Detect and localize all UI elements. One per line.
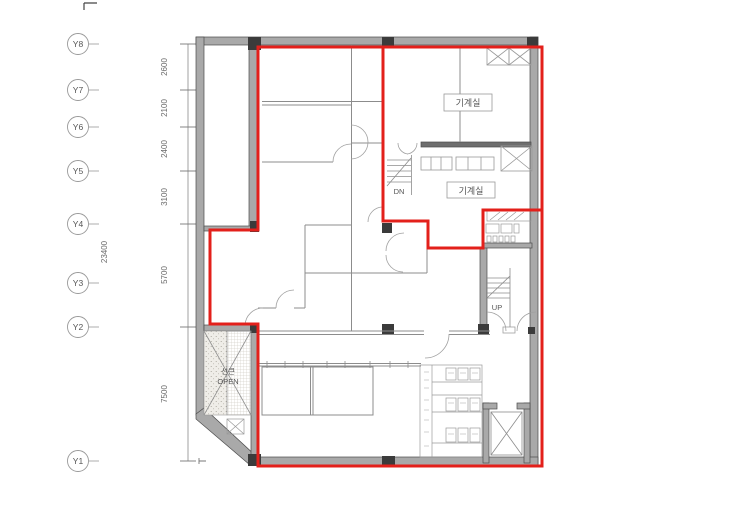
grid-axis: Y8 Y7 Y6 Y5 Y4 Y3 Y2 Y1 2600 2100 2400 3… bbox=[68, 34, 207, 472]
door-arc bbox=[245, 308, 263, 325]
wall-elevator-right bbox=[524, 403, 530, 463]
wall-sunken-top bbox=[204, 325, 257, 331]
wall-top bbox=[196, 37, 538, 45]
column bbox=[478, 324, 489, 334]
floor-plan-page: Y8 Y7 Y6 Y5 Y4 Y3 Y2 Y1 2600 2100 2400 3… bbox=[0, 0, 750, 530]
dimension-values: 2600 2100 2400 3100 5700 7500 23400 bbox=[100, 58, 169, 403]
sunken-area: 선큰 OPEN bbox=[204, 331, 251, 415]
column bbox=[382, 324, 394, 334]
duct-room bbox=[486, 211, 531, 242]
door-arc bbox=[368, 207, 383, 222]
machine-room-upper-label: 기계실 bbox=[456, 97, 481, 108]
grid-label-y8: Y8 bbox=[73, 39, 84, 49]
wall-elevator-left bbox=[483, 403, 489, 463]
grid-label-y6: Y6 bbox=[73, 122, 84, 132]
dim-7500: 7500 bbox=[160, 385, 169, 403]
door-arc bbox=[333, 144, 351, 162]
door-arc bbox=[407, 143, 417, 154]
dim-5700: 5700 bbox=[160, 266, 169, 284]
floor-plan-drawing: Y8 Y7 Y6 Y5 Y4 Y3 Y2 Y1 2600 2100 2400 3… bbox=[0, 0, 750, 530]
stair-up bbox=[487, 268, 510, 327]
dim-2100: 2100 bbox=[160, 99, 169, 117]
grid-label-y3: Y3 bbox=[73, 278, 84, 288]
door-threshold bbox=[503, 327, 515, 333]
door-arc bbox=[398, 143, 408, 154]
door-arc bbox=[351, 142, 368, 159]
wall-diagonal bbox=[196, 408, 257, 465]
corner-mark bbox=[84, 3, 97, 10]
pit-box bbox=[227, 419, 244, 434]
wall-corridor-right bbox=[249, 38, 257, 231]
grid-label-y5: Y5 bbox=[73, 166, 84, 176]
sunken-label-line1: 선큰 bbox=[221, 367, 235, 376]
wall-stair-left bbox=[480, 247, 487, 334]
dim-2600: 2600 bbox=[160, 58, 169, 76]
sunken-label-line2: OPEN bbox=[217, 377, 238, 386]
column bbox=[382, 456, 395, 465]
dim-3100: 3100 bbox=[160, 188, 169, 206]
wall-elevator-top-left bbox=[483, 403, 497, 409]
wall-left bbox=[196, 37, 204, 415]
stair-down-label: DN bbox=[394, 187, 405, 196]
door-arc bbox=[276, 290, 294, 308]
grid-bubbles bbox=[68, 34, 89, 472]
grid-label-y7: Y7 bbox=[73, 85, 84, 95]
wall-right bbox=[530, 37, 538, 465]
machine-room-lower-label: 기계실 bbox=[459, 185, 484, 196]
fixture-block bbox=[420, 365, 482, 457]
dim-2400: 2400 bbox=[160, 140, 169, 158]
wall-sunken-right bbox=[251, 331, 257, 458]
grid-bubble-labels: Y8 Y7 Y6 Y5 Y4 Y3 Y2 Y1 bbox=[73, 39, 84, 466]
door-arc bbox=[386, 233, 404, 251]
door-arc bbox=[351, 125, 368, 142]
wall-duct-bottom bbox=[483, 243, 532, 248]
grid-label-y4: Y4 bbox=[73, 219, 84, 229]
column bbox=[382, 223, 392, 233]
dim-total-23400: 23400 bbox=[100, 240, 109, 263]
grid-label-y1: Y1 bbox=[73, 456, 84, 466]
elevator bbox=[491, 412, 522, 455]
red-boundary-notch bbox=[383, 47, 542, 248]
grid-leaders bbox=[89, 44, 99, 461]
grid-label-y2: Y2 bbox=[73, 322, 84, 332]
stair-up-label: UP bbox=[492, 303, 502, 312]
wall-elevator-top-right bbox=[517, 403, 530, 409]
door-arc bbox=[386, 255, 403, 272]
door-jamb bbox=[528, 327, 535, 334]
door-arc bbox=[425, 334, 449, 358]
